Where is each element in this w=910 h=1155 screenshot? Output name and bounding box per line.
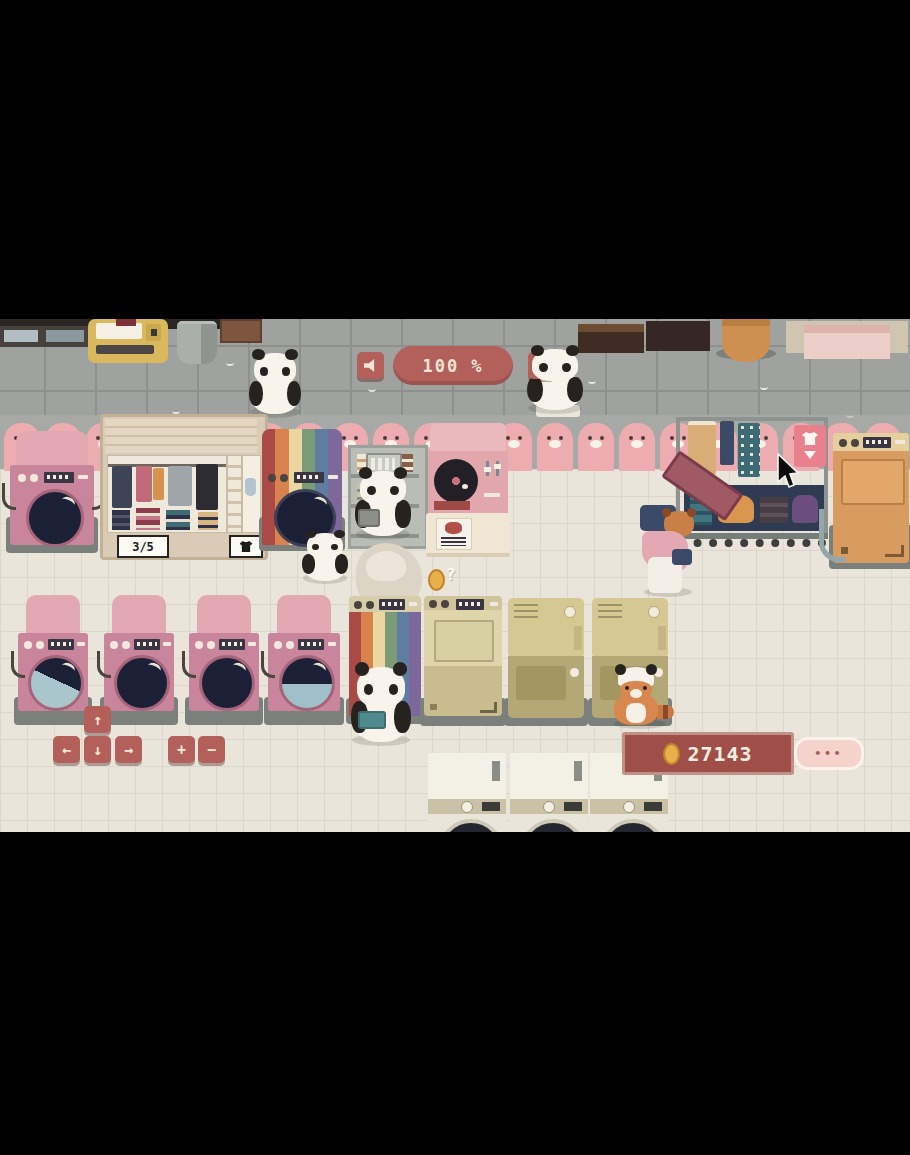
vinyl-glint (462, 484, 468, 489)
dryer-dash (895, 440, 905, 444)
hanging-garment-navy (720, 421, 734, 465)
recessed-panel (516, 666, 566, 700)
khaki-top (592, 598, 668, 658)
floating-question: ? (446, 565, 456, 584)
sparkle (368, 385, 376, 392)
plant-pot (722, 319, 770, 362)
hat-ear (646, 664, 657, 675)
wardrobe-capacity-label: 3/5 (132, 540, 154, 554)
down-arrow-icon (804, 451, 816, 465)
street-cream-mat (786, 321, 908, 353)
coin-icon (663, 743, 680, 765)
machine-upper (424, 610, 502, 668)
right-arrow-icon: → (124, 741, 133, 759)
machine-knobs (354, 601, 362, 609)
washer-display (219, 639, 245, 650)
machine-dash (409, 602, 417, 606)
corner-bracket (480, 702, 497, 713)
washer-dash (77, 642, 85, 646)
band-knob (543, 801, 555, 813)
washer-door-washing (28, 655, 84, 711)
sparkle (588, 377, 596, 384)
sparkle (172, 407, 180, 414)
red-panda-carrying-laundry[interactable] (636, 505, 702, 597)
washer-display (134, 639, 160, 650)
vent-lines (598, 604, 622, 620)
poster-lines (441, 537, 466, 546)
street-crate (220, 319, 262, 343)
laundry-basket (358, 509, 380, 527)
wardrobe-shelf-column (227, 455, 242, 533)
panda-head (532, 349, 577, 381)
jukebox[interactable] (424, 423, 512, 551)
lid-knob (564, 606, 576, 618)
washing-machine-pink[interactable] (6, 431, 98, 553)
floating-coin[interactable] (428, 569, 445, 591)
washer-knobs (110, 641, 118, 649)
kiosk-red-notch (116, 319, 136, 326)
lid-knob (648, 606, 660, 618)
washer-knobs (24, 641, 32, 649)
dryer-display (863, 437, 891, 448)
sparkle (846, 411, 854, 418)
panda-head (254, 353, 296, 385)
dryer-corner-bracket (885, 545, 904, 557)
panel-knob (570, 668, 579, 677)
dryer-knobs (839, 439, 847, 447)
panda-customer[interactable] (303, 533, 347, 581)
move-up-button[interactable]: ↑ (84, 706, 111, 733)
machine-display (379, 599, 405, 610)
vinyl-record (434, 459, 478, 503)
machine-dot (430, 704, 437, 710)
hose (261, 651, 275, 678)
sparkle (760, 383, 768, 390)
left-arrow-icon: ← (62, 741, 71, 759)
move-left-button[interactable]: ← (53, 736, 80, 763)
red-panda-muzzle (630, 689, 642, 698)
washing-machine-pink[interactable] (189, 595, 259, 725)
hanging-shirt-gray (168, 466, 192, 506)
clothes-trim-navy (672, 549, 692, 565)
washing-machine-pink[interactable] (268, 595, 340, 725)
wardrobe[interactable]: 3/5 (100, 414, 268, 560)
side-tag (574, 626, 582, 650)
side-tag (574, 761, 582, 781)
window-panes (4, 330, 84, 342)
dryer-lid (841, 459, 905, 505)
volume-label: 100 % (422, 356, 483, 376)
game-viewport: 3/5 (0, 319, 910, 832)
washer-door (114, 655, 170, 711)
red-panda-face (620, 681, 652, 699)
washer-dash (328, 642, 336, 646)
jukebox-base (426, 513, 510, 557)
wardrobe-capacity-badge: 3/5 (117, 535, 169, 558)
panda-head (360, 471, 405, 505)
street-kiosk (88, 319, 168, 363)
folded-stack (136, 508, 160, 530)
white-band (428, 799, 506, 814)
folded-dark-stack (760, 497, 788, 523)
hanging-coat-black (196, 464, 218, 510)
slider-knob (494, 464, 501, 469)
side-tag (658, 626, 666, 650)
wardrobe-interior (107, 455, 227, 533)
panda-eye (562, 363, 571, 371)
up-arrow-icon: ↑ (93, 711, 102, 729)
white-band (510, 799, 588, 814)
washer-dash (328, 475, 338, 479)
minus-icon: − (207, 741, 216, 759)
wall-arch (578, 423, 614, 471)
washer-dash (78, 475, 88, 479)
kiosk-slot (96, 345, 154, 354)
red-panda-belly (626, 703, 646, 723)
washer-dash (248, 642, 256, 646)
washer-knobs (274, 641, 282, 649)
folded-stack (112, 510, 130, 530)
hose (2, 483, 16, 510)
volume-down-button[interactable] (357, 352, 384, 379)
cream-mat-inner (804, 325, 890, 359)
trash-can (177, 321, 217, 364)
washer-knobs (268, 474, 276, 482)
kiosk-tab-dot (151, 329, 157, 336)
storefront-window (0, 326, 90, 347)
washer-display (48, 639, 74, 650)
panda-eye (367, 486, 376, 495)
red-panda-ear (662, 508, 671, 517)
red-panda-eye (643, 686, 647, 690)
plus-icon: + (177, 741, 186, 759)
panda-eye (389, 684, 398, 694)
progress-bars (371, 458, 395, 470)
street-bench (578, 324, 644, 353)
washer-dash (163, 642, 171, 646)
panda-eye (539, 363, 548, 371)
wardrobe-slats (105, 419, 257, 453)
kiosk-tab (146, 324, 161, 341)
hanging-scarf-orange (153, 468, 164, 500)
jukebox-dash (484, 493, 500, 497)
jukebox-body (428, 451, 508, 515)
wardrobe-shirt-badge (229, 535, 263, 558)
coin-counter-panel: 27143 (622, 732, 794, 775)
panda-eye (331, 544, 338, 550)
move-down-button[interactable]: ↓ (84, 736, 111, 763)
red-panda-sitting[interactable] (610, 667, 672, 729)
slider-knob (484, 467, 491, 472)
white-band (590, 799, 668, 814)
band-display (564, 802, 582, 811)
washer-knobs (18, 474, 26, 482)
machine-dash (490, 602, 498, 606)
pile-highlight (366, 551, 406, 581)
band-knob (623, 801, 635, 813)
panda-eye (312, 544, 319, 550)
folded-sweater-purple (792, 495, 818, 523)
panda-eye (282, 367, 290, 375)
poster (436, 518, 472, 550)
hose (182, 651, 196, 678)
red-panda-ear (687, 508, 696, 517)
side-tag (492, 761, 500, 781)
dryer-hose (819, 509, 846, 562)
washer-door (199, 655, 255, 711)
wall-arch (619, 423, 655, 471)
move-right-button[interactable]: → (115, 736, 142, 763)
washer-display (44, 472, 74, 483)
washing-machine-cream[interactable] (424, 596, 502, 724)
shirt-down-icon (802, 432, 818, 445)
street-dark-mat (646, 321, 710, 351)
towel-in-arms (358, 711, 386, 729)
washing-machine-pink[interactable] (104, 595, 174, 725)
zoom-in-button[interactable]: + (168, 736, 195, 763)
folded-stack (198, 512, 218, 530)
band-display (644, 802, 662, 811)
panda-worker[interactable] (356, 471, 410, 537)
washer-display (294, 472, 324, 483)
hanging-dress-pink (136, 466, 152, 502)
band-display (482, 802, 500, 811)
hat-ear (615, 664, 626, 675)
hanging-coat-navy (112, 466, 132, 508)
machine-lower (424, 666, 502, 716)
machine-lid (434, 620, 494, 662)
washer-door-washing (279, 655, 335, 711)
jukebox-nameplate (434, 501, 470, 510)
volume-indicator: 100 % (393, 346, 513, 385)
panda-eye (390, 486, 399, 495)
washer-knobs (195, 641, 203, 649)
zoom-out-button[interactable]: − (198, 736, 225, 763)
speaker-icon (364, 359, 377, 372)
folded-stack (166, 510, 190, 530)
washing-machine-pink[interactable] (18, 595, 88, 725)
ellipsis-icon: ••• (815, 749, 844, 759)
washing-machine-white[interactable] (510, 753, 588, 832)
panda-eye (364, 684, 373, 694)
laundry-bag-icon (245, 478, 256, 496)
dryer-panel (833, 433, 909, 453)
hanging-garment-teal (738, 423, 760, 477)
down-arrow-icon: ↓ (93, 741, 102, 759)
machine-display (456, 599, 484, 610)
hose (11, 651, 25, 678)
panda-head (307, 533, 344, 558)
washing-machine-white[interactable] (428, 753, 506, 832)
panda-customer[interactable] (528, 349, 582, 411)
band-knob (461, 801, 473, 813)
panda-customer[interactable] (250, 353, 300, 415)
khaki-top (508, 598, 584, 658)
washing-machine-khaki[interactable] (508, 598, 584, 724)
hose (97, 651, 111, 678)
panda-head (357, 667, 406, 707)
more-options-button[interactable]: ••• (794, 737, 864, 770)
machine-knobs (429, 600, 437, 608)
sparkle (226, 359, 234, 366)
washer-door (26, 489, 84, 547)
khaki-lower (508, 656, 584, 718)
wall-arch (537, 423, 573, 471)
mouse-cursor (777, 453, 801, 491)
dryer-orange[interactable] (833, 433, 909, 569)
panda-eye (260, 367, 268, 375)
coin-count: 27143 (687, 742, 752, 766)
washer-display (298, 639, 324, 650)
shirt-icon (240, 541, 253, 552)
red-panda-eye (625, 686, 629, 690)
poster-red-blob (445, 522, 462, 534)
vent-lines (514, 604, 538, 620)
panda-worker[interactable] (352, 667, 410, 743)
